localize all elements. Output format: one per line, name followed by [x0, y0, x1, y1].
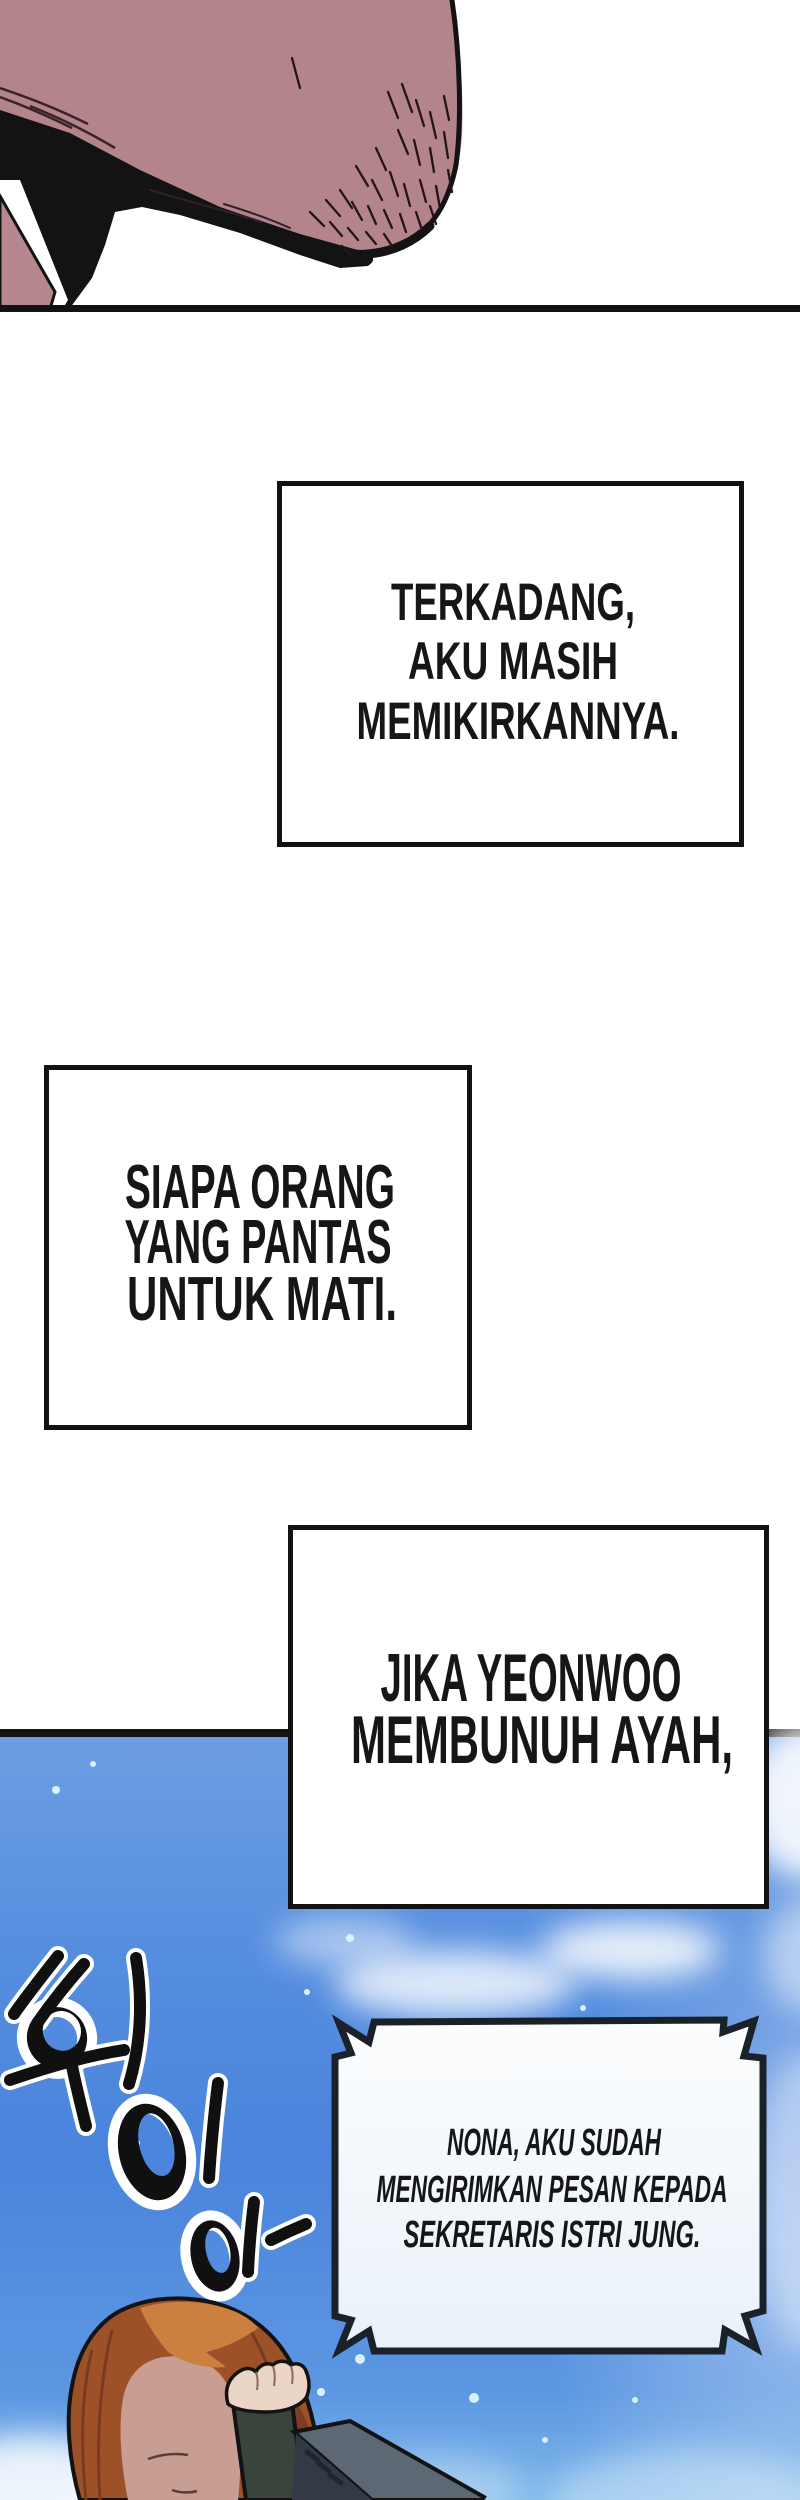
svg-text:TERKADANG,: TERKADANG,: [391, 573, 635, 632]
svg-text:MEMIKIRKANNYA.: MEMIKIRKANNYA.: [357, 692, 680, 751]
svg-text:MEMBUNUH AYAH,: MEMBUNUH AYAH,: [351, 1702, 733, 1778]
svg-text:NONA, AKU SUDAH: NONA, AKU SUDAH: [447, 2122, 662, 2164]
svg-text:MENGIRIMKAN PESAN KEPADA: MENGIRIMKAN PESAN KEPADA: [377, 2169, 728, 2211]
svg-text:UNTUK MATI.: UNTUK MATI.: [127, 1265, 397, 1334]
svg-text:AKU MASIH: AKU MASIH: [408, 632, 618, 691]
svg-text:SEKRETARIS ISTRI JUNG.: SEKRETARIS ISTRI JUNG.: [404, 2214, 701, 2256]
